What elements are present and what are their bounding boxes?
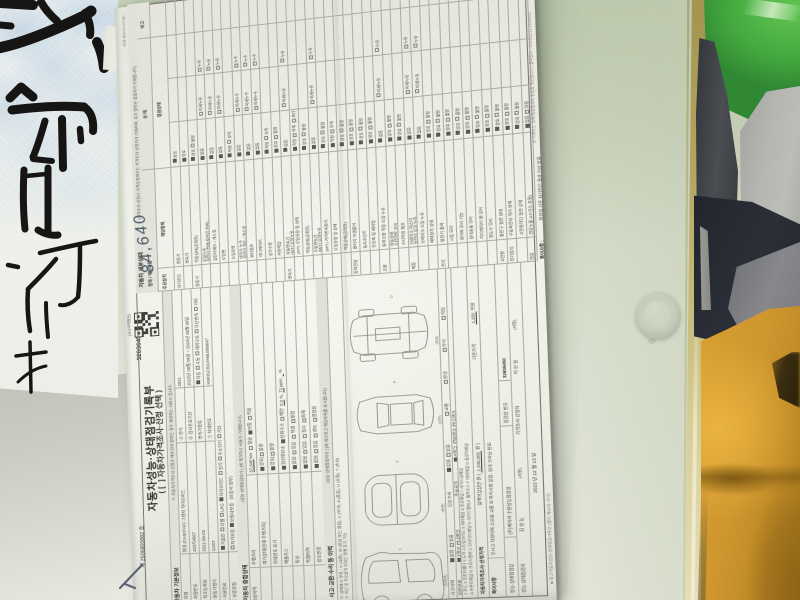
svg-text:6: 6 [392,381,396,383]
svg-text:1: 1 [398,548,402,550]
svg-text:D: D [389,295,393,298]
svg-text:5: 5 [395,460,399,462]
